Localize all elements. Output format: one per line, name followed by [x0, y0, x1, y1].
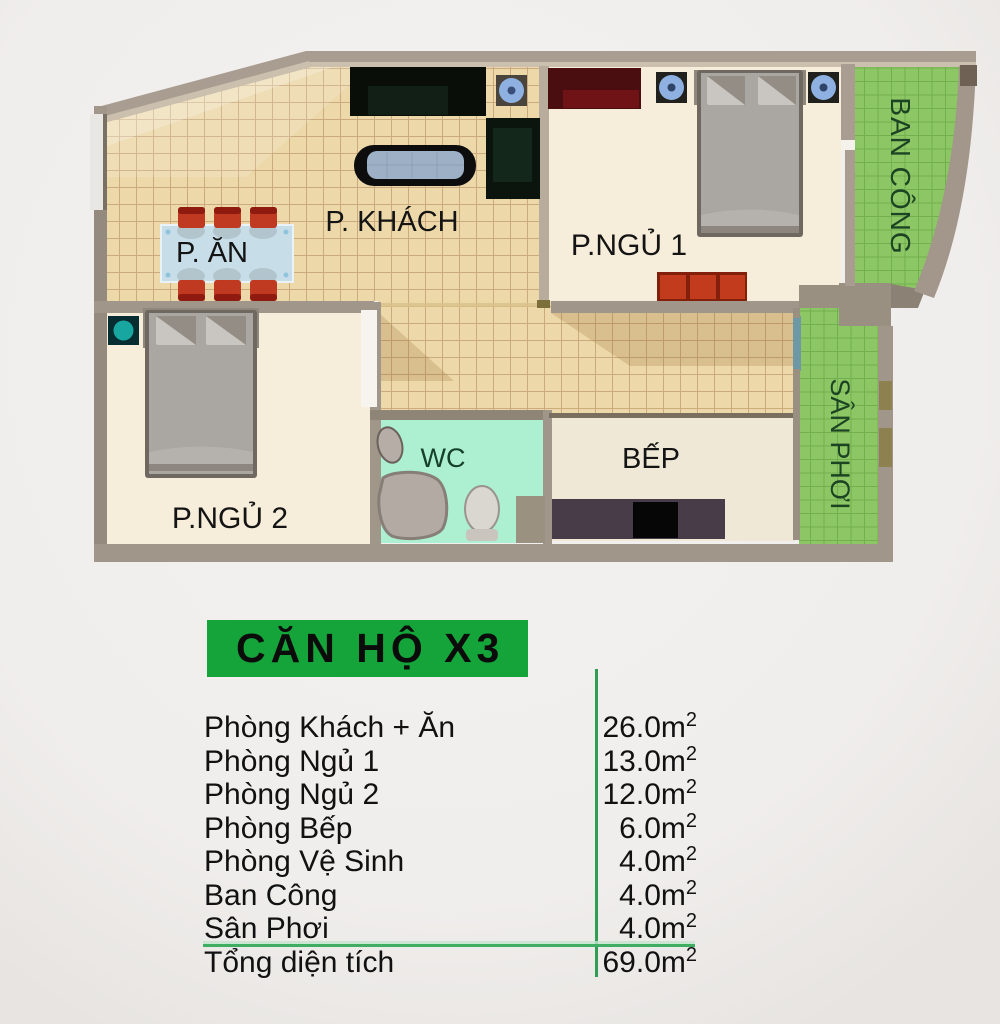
svg-text:12.0m2: 12.0m2 [602, 776, 697, 811]
svg-text:Ban Công: Ban Công [204, 879, 337, 912]
svg-text:P.NGỦ 1: P.NGỦ 1 [571, 228, 687, 262]
svg-text:69.0m2: 69.0m2 [602, 944, 697, 979]
svg-text:SÂN PHƠI: SÂN PHƠI [825, 378, 856, 509]
svg-text:BẾP: BẾP [622, 441, 680, 475]
svg-text:4.0m2: 4.0m2 [619, 877, 697, 912]
svg-text:Phòng Bếp: Phòng Bếp [204, 812, 352, 845]
svg-text:Tổng diện tích: Tổng diện tích [204, 946, 394, 979]
svg-text:P.NGỦ 2: P.NGỦ 2 [172, 501, 288, 535]
svg-text:Phòng Ngủ 2: Phòng Ngủ 2 [204, 778, 379, 811]
svg-text:Phòng Vệ Sinh: Phòng Vệ Sinh [204, 845, 404, 878]
svg-text:Phòng Khách + Ăn: Phòng Khách + Ăn [204, 711, 455, 744]
svg-text:6.0m2: 6.0m2 [619, 810, 697, 845]
svg-text:P. ĂN: P. ĂN [176, 236, 248, 269]
svg-text:4.0m2: 4.0m2 [619, 910, 697, 945]
svg-text:BAN CÔNG: BAN CÔNG [885, 97, 916, 254]
svg-text:13.0m2: 13.0m2 [602, 743, 697, 778]
svg-text:Sân Phơi: Sân Phơi [204, 912, 329, 945]
svg-text:26.0m2: 26.0m2 [602, 709, 697, 744]
svg-text:CĂN HỘ X3: CĂN HỘ X3 [236, 625, 504, 671]
svg-text:WC: WC [421, 443, 466, 473]
svg-text:4.0m2: 4.0m2 [619, 843, 697, 878]
svg-text:Phòng Ngủ 1: Phòng Ngủ 1 [204, 745, 379, 778]
svg-text:P. KHÁCH: P. KHÁCH [325, 205, 458, 238]
